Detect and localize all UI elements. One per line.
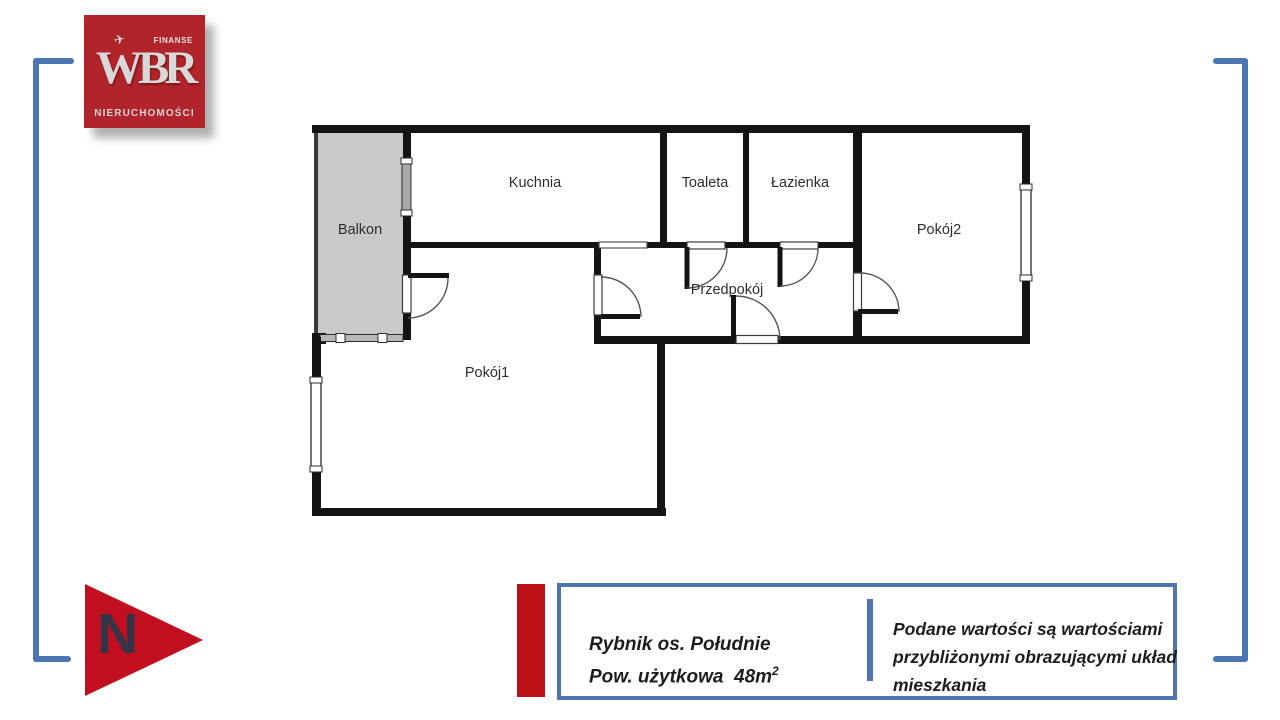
listing-location: Rybnik os. Południe <box>589 631 779 658</box>
doors <box>403 242 900 344</box>
floorplan-page: ✈ FINANSE WBR NIERUCHOMOŚCI <box>0 0 1280 720</box>
listing-summary: Rybnik os. Południe Pow. użytkowa 48m2 <box>589 631 779 690</box>
red-accent-bar <box>517 584 545 697</box>
north-label: N <box>97 606 138 663</box>
room-label-kuchnia: Kuchnia <box>509 175 562 191</box>
room-label-przedpokoj: Przedpokój <box>691 282 764 298</box>
room-label-toaleta: Toaleta <box>682 175 730 191</box>
room-label-balkon: Balkon <box>338 222 382 238</box>
listing-area: Pow. użytkowa 48m2 <box>589 658 779 690</box>
windows <box>310 158 1032 472</box>
balcony <box>312 133 403 344</box>
room-label-lazienka: Łazienka <box>771 175 830 191</box>
disclaimer-text: Podane wartości są wartościami przybliżo… <box>893 615 1178 699</box>
room-label-pokoj1: Pokój1 <box>465 365 509 381</box>
walls <box>312 125 1030 516</box>
info-box: Rybnik os. Południe Pow. użytkowa 48m2 P… <box>557 583 1177 700</box>
info-separator <box>867 599 873 681</box>
room-label-pokoj2: Pokój2 <box>917 222 961 238</box>
